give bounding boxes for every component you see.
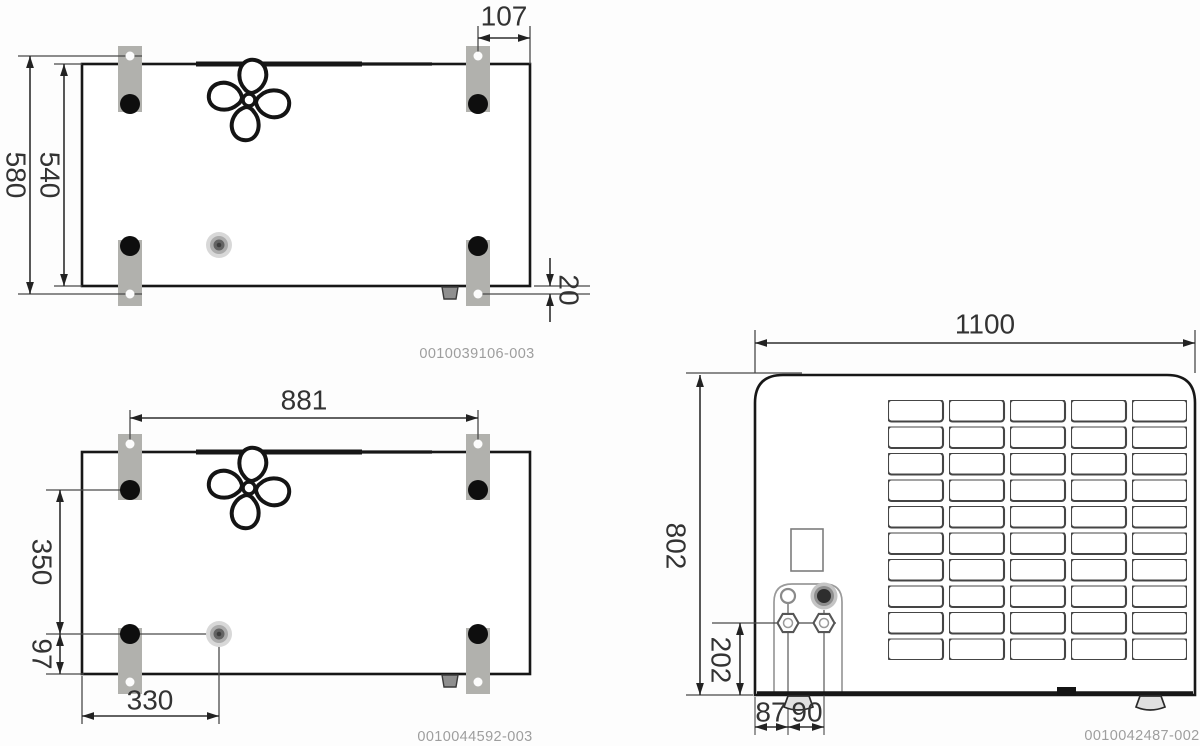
dim-label-drain-to-edge: 97 (27, 638, 58, 669)
bracket-hole (126, 440, 135, 449)
bracket-hole (474, 440, 483, 449)
drawing-number-rear: 0010042487-002 (1084, 728, 1199, 744)
foot-right (1136, 696, 1165, 710)
ventilation-grille (888, 400, 1187, 660)
view-top-spacing: 881 350 97 330 0010044592-003 (27, 385, 533, 746)
bracket-hole (474, 290, 483, 299)
bolt-dot (120, 624, 140, 644)
dim-label-hole-spacing: 881 (281, 385, 328, 416)
view-rear: 1100 802 202 87 90 0010042487-002 (661, 309, 1200, 745)
bracket-hole (126, 290, 135, 299)
dim-label-connection-offset-1: 87 (755, 697, 786, 728)
bolt-dot (468, 236, 488, 256)
dim-label-overall-depth: 580 (1, 152, 32, 199)
dim-label-bracket-offset: 107 (481, 1, 528, 32)
dim-label-hole-overhang: 20 (554, 274, 585, 305)
drain-grommet (206, 232, 232, 258)
drawing-number-top-spacing: 0010044592-003 (417, 729, 532, 745)
dim-label-connection-height: 202 (706, 637, 737, 684)
hex-fitting-left (778, 614, 799, 632)
bolt-dot (120, 94, 140, 114)
base-tab (1057, 687, 1076, 696)
drain-grommet (206, 621, 232, 647)
bolt-dot (468, 94, 488, 114)
bolt-dot (468, 624, 488, 644)
technical-drawing-canvas: 580 540 107 20 0010039106-003 (0, 0, 1200, 746)
unit-outline-top-view-2 (82, 452, 530, 674)
bracket-hole (126, 52, 135, 61)
dim-label-hole-to-drain: 350 (27, 539, 58, 586)
drain-outlet-tab (442, 675, 458, 687)
dim-label-inner-depth: 540 (35, 152, 66, 199)
bolt-dot (120, 480, 140, 500)
bracket-hole (474, 52, 483, 61)
view-top-mounting: 580 540 107 20 0010039106-003 (1, 1, 591, 363)
large-connection-port-core (817, 589, 831, 603)
bolt-dot (120, 236, 140, 256)
dim-label-unit-width: 1100 (955, 309, 1015, 340)
dim-label-unit-height: 802 (661, 523, 692, 570)
small-connection-port (781, 589, 795, 603)
drain-outlet-tab (442, 287, 458, 299)
bracket-hole (474, 678, 483, 687)
hex-fitting-right (814, 614, 835, 632)
unit-outline-top-view (82, 64, 530, 286)
dim-label-connection-offset-2: 90 (791, 697, 822, 728)
drawing-number-top-mounting: 0010039106-003 (419, 346, 534, 362)
technical-drawing-page: 580 540 107 20 0010039106-003 (0, 0, 1200, 746)
bolt-dot (468, 480, 488, 500)
dim-label-drain-offset: 330 (127, 685, 174, 716)
